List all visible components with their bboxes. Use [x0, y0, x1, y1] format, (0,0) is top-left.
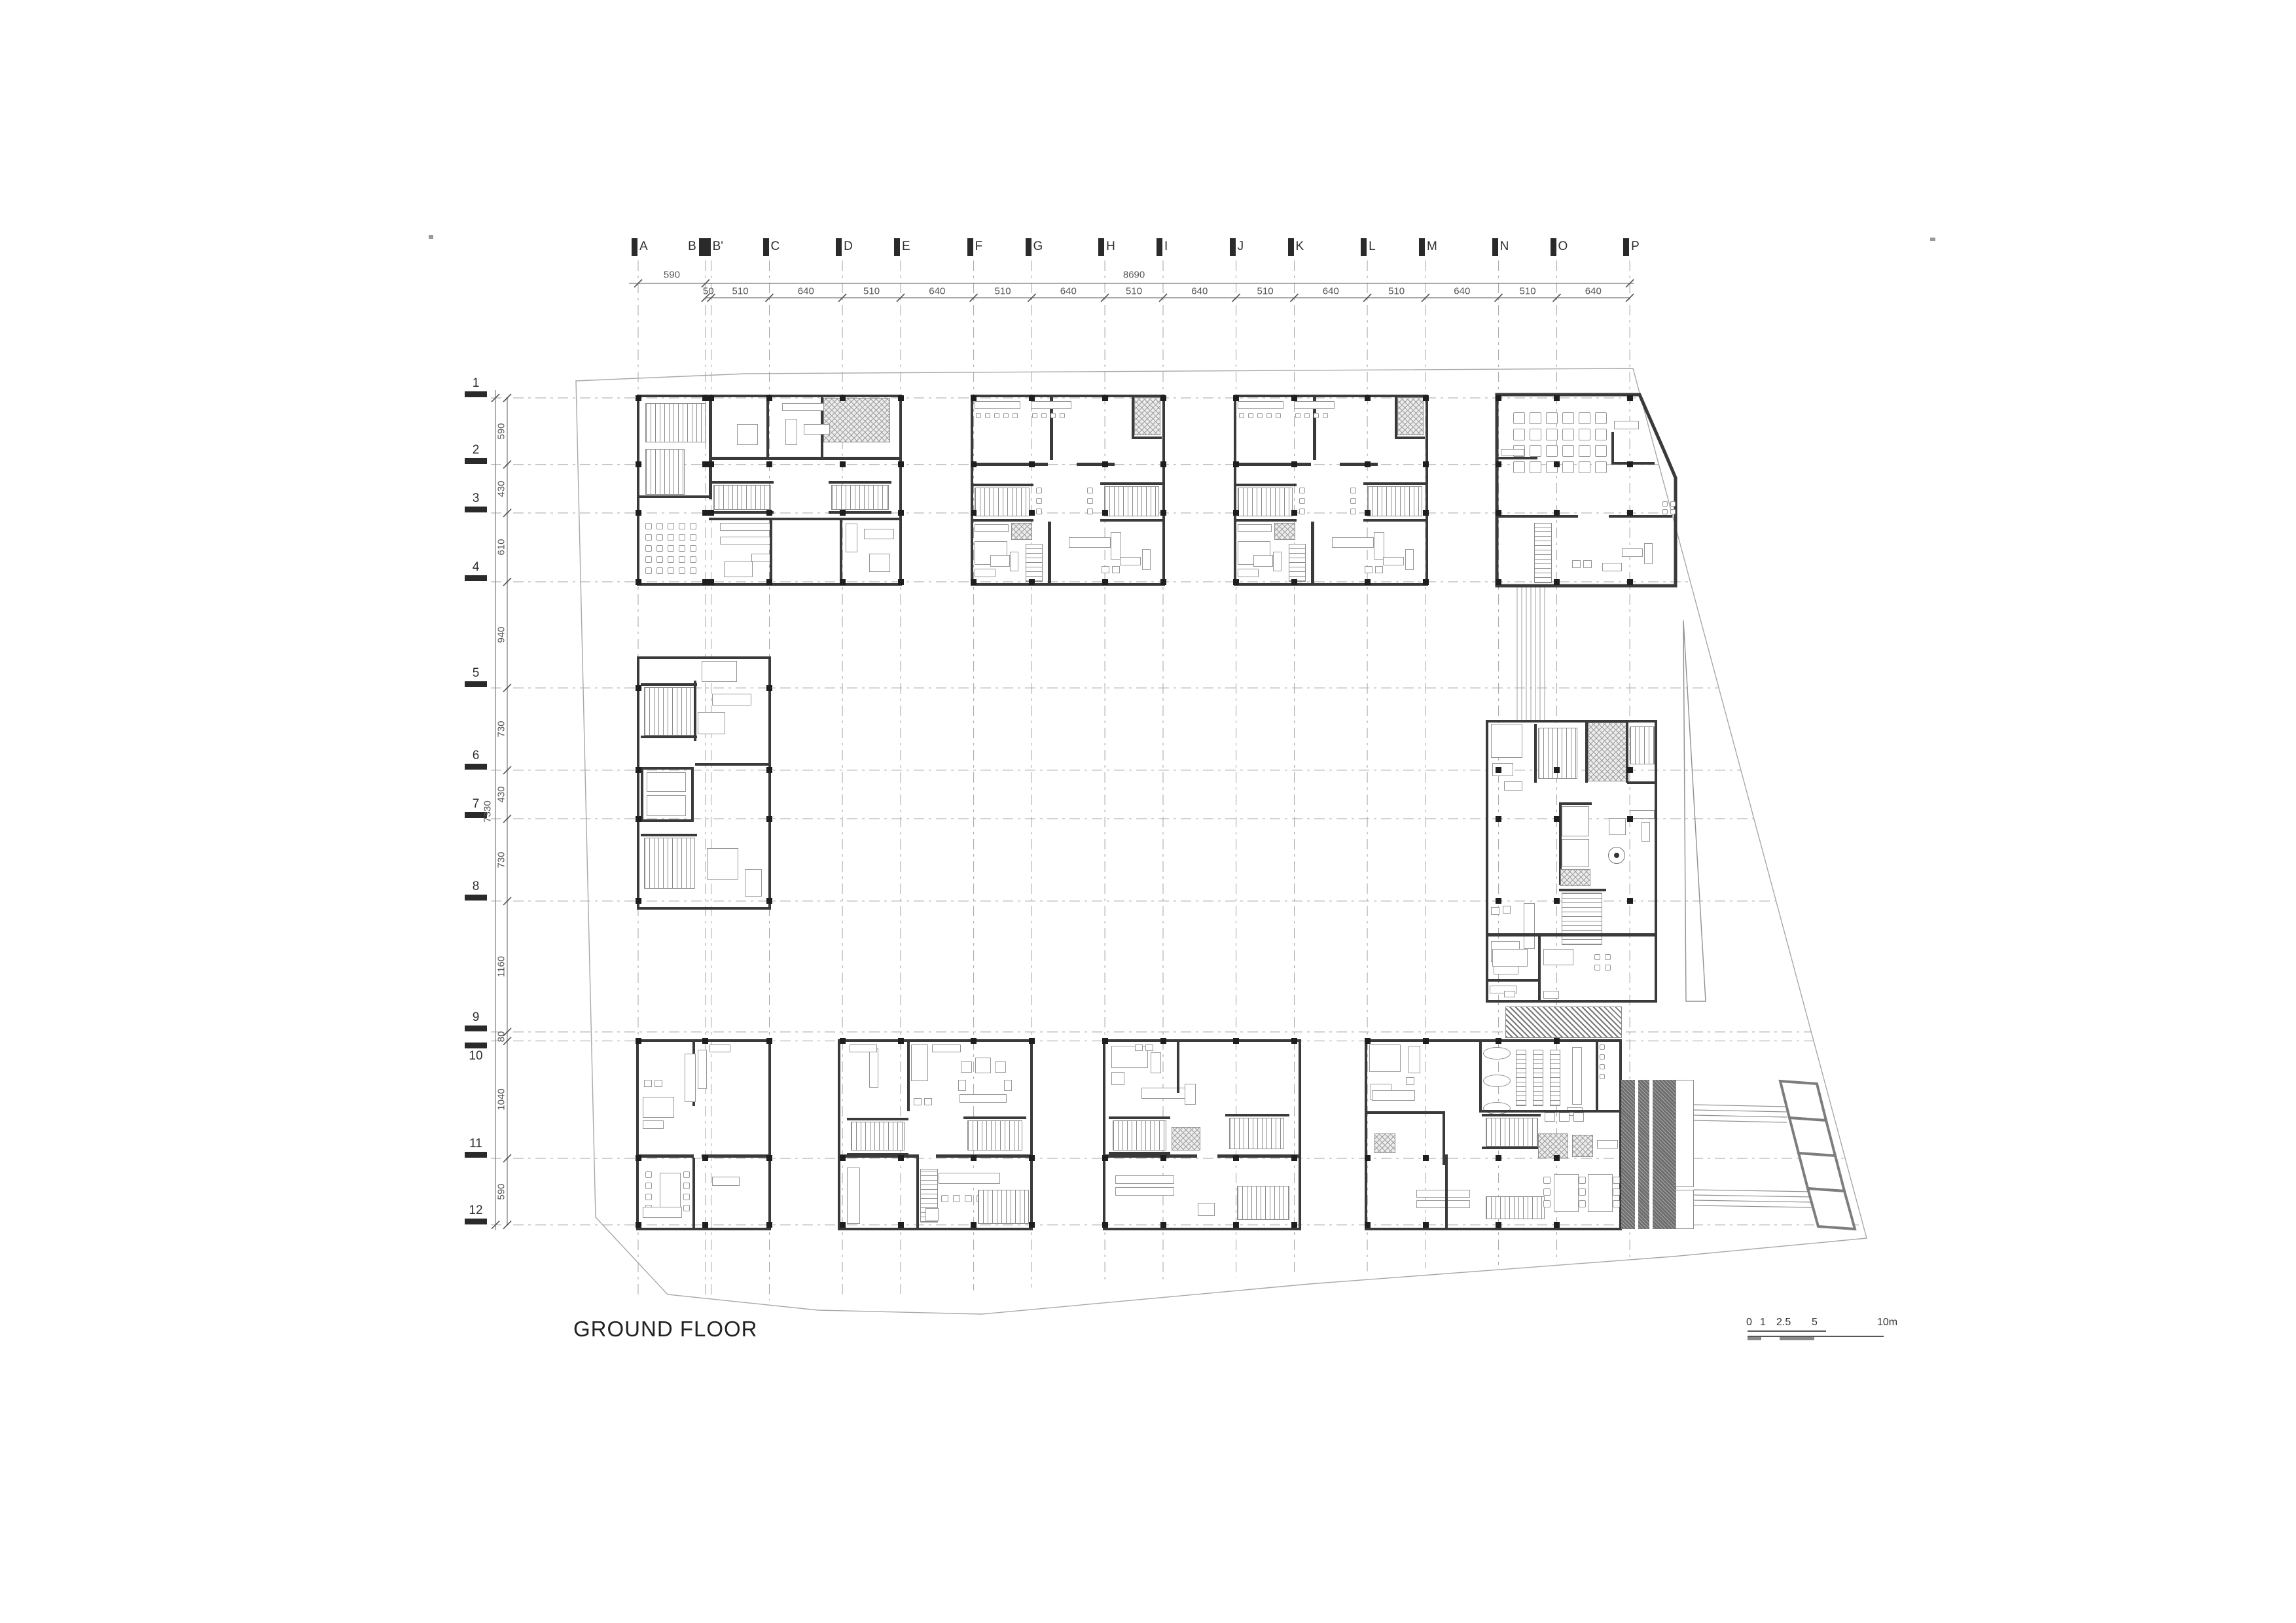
- wall: [838, 1154, 919, 1158]
- scale-bar-baseline: [1748, 1336, 1884, 1337]
- structural-column: [702, 395, 708, 401]
- dim-label-top-segment: 640: [1323, 286, 1339, 297]
- wall: [1559, 802, 1592, 805]
- scale-bar-underline: [1748, 1330, 1826, 1332]
- wall: [971, 484, 1033, 486]
- structural-column: [1496, 1038, 1501, 1044]
- grid-row-label-10: 10: [465, 1049, 487, 1063]
- structural-column: [840, 1222, 846, 1228]
- floor-plan-canvas: ABB'CDEFGHIJKLMNOP1234567891011125051064…: [0, 0, 2296, 1623]
- grid-column-label-M: M: [1427, 240, 1437, 254]
- room-outline: [1562, 806, 1589, 836]
- stair: [1367, 486, 1422, 516]
- wall: [702, 1154, 771, 1158]
- wall: [694, 681, 696, 741]
- furniture: [1365, 566, 1372, 573]
- wc-zone: [1572, 1135, 1593, 1157]
- grid-column-label-O: O: [1558, 240, 1568, 254]
- grid-row-marker-5: [465, 681, 487, 687]
- dim-label-left-segment: 80: [496, 1031, 507, 1042]
- stair: [1550, 1050, 1560, 1106]
- strip-gap: [1649, 1080, 1653, 1229]
- structural-column: [1160, 395, 1166, 401]
- structural-column: [1423, 1222, 1429, 1228]
- dim-label-top-segment: 510: [1257, 286, 1274, 297]
- furniture: [1504, 781, 1522, 791]
- grid-row-label-3: 3: [465, 491, 487, 506]
- chair: [1530, 461, 1541, 473]
- structural-column: [702, 510, 708, 516]
- grid-column-label-B: B: [688, 240, 696, 254]
- structural-column: [1496, 461, 1501, 467]
- chair: [1579, 1177, 1586, 1184]
- grid-column-label-L: L: [1369, 240, 1376, 254]
- furniture: [990, 555, 1010, 567]
- furniture: [1630, 810, 1655, 819]
- structural-column: [1291, 1222, 1297, 1228]
- wall: [692, 1158, 695, 1230]
- chair: [1546, 429, 1558, 440]
- grid-column-marker-B': [705, 238, 711, 256]
- chair: [1562, 461, 1574, 473]
- furniture: [643, 1097, 674, 1118]
- structural-column: [1102, 579, 1108, 585]
- furniture: [1151, 1052, 1161, 1073]
- chair: [1003, 413, 1009, 418]
- chair: [1350, 508, 1356, 514]
- laundry-machine: [1483, 1047, 1511, 1060]
- structural-column: [1233, 395, 1239, 401]
- furniture: [1369, 1044, 1401, 1072]
- grid-column-marker-J: [1230, 238, 1236, 256]
- grid-row-label-4: 4: [465, 560, 487, 575]
- furniture: [850, 1044, 877, 1052]
- grid-column-marker-L: [1361, 238, 1367, 256]
- structural-column: [1365, 395, 1371, 401]
- structural-column: [898, 461, 904, 467]
- chair: [1562, 429, 1574, 440]
- grid-column-marker-D: [836, 238, 842, 256]
- furniture: [1405, 549, 1414, 570]
- furniture: [1491, 724, 1522, 758]
- furniture: [1492, 949, 1528, 967]
- wall: [641, 736, 697, 738]
- structural-column: [1029, 461, 1035, 467]
- grid-column-marker-B: [699, 238, 705, 256]
- chair: [1579, 429, 1590, 440]
- chair: [656, 523, 663, 529]
- chair: [1594, 965, 1600, 971]
- chair: [1579, 1188, 1586, 1196]
- furniture: [1332, 537, 1374, 548]
- stair: [644, 687, 695, 736]
- chair: [690, 545, 696, 552]
- structural-column: [840, 395, 846, 401]
- furniture: [1145, 1044, 1153, 1051]
- dim-label-top-segment: 640: [929, 286, 945, 297]
- wall: [636, 1154, 694, 1158]
- chair: [1613, 1188, 1620, 1196]
- furniture: [975, 401, 1020, 409]
- chair: [1579, 1200, 1586, 1207]
- wall: [766, 395, 769, 458]
- chair: [976, 413, 981, 418]
- wall: [1559, 889, 1606, 891]
- stair: [851, 1122, 905, 1150]
- structural-column: [1102, 1038, 1108, 1044]
- structural-column: [766, 898, 772, 904]
- furniture: [1111, 532, 1121, 560]
- structural-column: [1233, 1038, 1239, 1044]
- structural-column: [1496, 1155, 1501, 1161]
- wall: [641, 819, 693, 822]
- furniture: [1238, 524, 1272, 532]
- structural-column: [1554, 510, 1560, 516]
- furniture: [1069, 537, 1111, 548]
- stair: [1113, 1120, 1166, 1150]
- furniture: [1543, 949, 1573, 965]
- chair: [953, 1195, 960, 1202]
- structural-column: [636, 1155, 641, 1161]
- structural-column: [1291, 579, 1297, 585]
- furniture: [698, 1050, 707, 1089]
- chair: [679, 545, 685, 552]
- wall: [709, 518, 902, 520]
- chair: [1579, 412, 1590, 424]
- stair: [1289, 544, 1306, 582]
- grid-row-label-5: 5: [465, 666, 487, 681]
- wall: [1486, 933, 1657, 936]
- furniture: [925, 1208, 939, 1221]
- grid-row-marker-2: [465, 458, 487, 464]
- chair: [683, 1205, 690, 1211]
- structural-column: [766, 395, 772, 401]
- furniture: [911, 1044, 928, 1081]
- wall: [1363, 482, 1426, 485]
- structural-column: [898, 579, 904, 585]
- structural-column: [1365, 579, 1371, 585]
- wall: [770, 518, 772, 586]
- grid-column-label-N: N: [1500, 240, 1509, 254]
- grid-row-marker-11: [465, 1152, 487, 1158]
- wall: [1311, 522, 1314, 586]
- furniture: [847, 1168, 860, 1224]
- chair: [656, 545, 663, 552]
- furniture: [1198, 1203, 1215, 1216]
- furniture: [1185, 1084, 1196, 1105]
- furniture: [995, 1061, 1006, 1073]
- structural-column: [1233, 510, 1239, 516]
- bridge-connector-line: [1694, 1115, 1787, 1117]
- wall: [641, 767, 693, 770]
- dim-label-left-segment: 610: [496, 539, 507, 556]
- furniture: [1273, 552, 1282, 571]
- furniture: [702, 661, 737, 682]
- structural-column: [766, 1222, 772, 1228]
- structural-column: [1496, 1222, 1501, 1228]
- wall: [1609, 515, 1672, 518]
- wall: [971, 519, 1033, 522]
- furniture: [647, 772, 686, 792]
- structural-column: [971, 1222, 977, 1228]
- furniture: [647, 795, 686, 816]
- furniture: [932, 1044, 961, 1052]
- structural-column: [766, 1038, 772, 1044]
- grid-row-label-12: 12: [465, 1204, 487, 1218]
- stair: [1562, 893, 1602, 945]
- chair: [1087, 498, 1093, 504]
- structural-column: [1627, 816, 1633, 822]
- dim-label-left-segment: 430: [496, 480, 507, 497]
- chair: [1036, 498, 1042, 504]
- grid-row-marker-12: [465, 1219, 487, 1224]
- chair: [679, 523, 685, 529]
- grid-column-marker-I: [1157, 238, 1162, 256]
- structural-column: [636, 579, 641, 585]
- stair: [1533, 1050, 1543, 1106]
- structural-column: [1102, 1222, 1108, 1228]
- wall: [1363, 519, 1426, 522]
- wall: [1479, 1039, 1482, 1113]
- service-strip: [1621, 1080, 1676, 1229]
- chair: [1299, 488, 1305, 493]
- chair: [645, 545, 652, 552]
- scale-bar: 0 1 2.5 5 10m: [1742, 1314, 1899, 1343]
- grid-column-marker-K: [1288, 238, 1294, 256]
- chair: [690, 567, 696, 574]
- furniture: [1238, 569, 1259, 577]
- furniture: [961, 1061, 972, 1073]
- chair: [679, 567, 685, 574]
- furniture: [1294, 401, 1335, 409]
- furniture: [1622, 548, 1643, 557]
- structural-column: [1029, 395, 1035, 401]
- chair: [683, 1171, 690, 1178]
- wall: [711, 511, 774, 514]
- scale-bar-segment: [1780, 1337, 1814, 1340]
- wc-zone: [1397, 397, 1424, 435]
- dim-label-overall-height: 7330: [482, 800, 493, 822]
- structural-column: [636, 767, 641, 773]
- furniture: [1408, 1046, 1420, 1073]
- structural-column: [766, 461, 772, 467]
- wall: [1445, 1154, 1448, 1230]
- external-stair-panel: [1780, 1081, 1826, 1120]
- furniture: [1416, 1190, 1470, 1198]
- structural-column: [1627, 395, 1633, 401]
- structural-column: [702, 1222, 708, 1228]
- chair: [1605, 965, 1611, 971]
- dim-label-top-segment: 510: [995, 286, 1011, 297]
- furniture: [724, 562, 753, 577]
- bridge-connector-line: [1694, 1190, 1814, 1192]
- wall: [847, 1118, 908, 1120]
- structural-column: [702, 1155, 708, 1161]
- structural-column: [1291, 395, 1297, 401]
- structural-column: [1160, 510, 1166, 516]
- structural-column: [1102, 395, 1108, 401]
- structural-column: [1423, 461, 1429, 467]
- chair: [645, 534, 652, 541]
- furniture: [958, 1080, 966, 1091]
- scale-label-10m: 10m: [1877, 1317, 1897, 1329]
- furniture: [1115, 1187, 1174, 1196]
- chair: [1662, 501, 1668, 507]
- chair: [1543, 1177, 1551, 1184]
- furniture: [975, 524, 1009, 532]
- laundry-machine: [1483, 1102, 1511, 1115]
- structural-column: [971, 579, 977, 585]
- wc-zone: [1134, 397, 1160, 435]
- furniture: [707, 848, 738, 880]
- wc-zone: [1588, 722, 1627, 781]
- bridge-connector-line: [1694, 1205, 1814, 1207]
- wall: [1100, 519, 1163, 522]
- structural-column: [636, 510, 641, 516]
- wall: [829, 511, 891, 514]
- chair: [679, 534, 685, 541]
- structural-column: [1554, 579, 1560, 585]
- furniture: [1141, 1088, 1187, 1099]
- furniture: [1545, 1113, 1555, 1122]
- furniture: [655, 1080, 662, 1087]
- chair: [985, 413, 990, 418]
- grid-row-label-8: 8: [465, 880, 487, 894]
- structural-column: [1423, 395, 1429, 401]
- stair: [1630, 726, 1655, 764]
- stair: [645, 449, 685, 495]
- chair: [1050, 413, 1056, 418]
- chair: [1595, 412, 1607, 424]
- grid-column-label-J: J: [1238, 240, 1244, 254]
- stair: [1229, 1118, 1284, 1149]
- laundry-machine: [1483, 1075, 1511, 1087]
- furniture: [1573, 1113, 1584, 1122]
- dim-label-left-segment: 1040: [496, 1089, 507, 1111]
- chair: [1513, 412, 1525, 424]
- furniture: [1111, 1072, 1124, 1085]
- chair: [679, 556, 685, 563]
- stair: [967, 1120, 1022, 1150]
- chair: [645, 523, 652, 529]
- chair: [1530, 412, 1541, 424]
- grid-row-label-2: 2: [465, 443, 487, 457]
- chair: [1662, 509, 1668, 514]
- furniture: [1572, 1047, 1582, 1105]
- structural-column: [840, 1038, 846, 1044]
- wall: [1626, 722, 1628, 783]
- wall: [1225, 1114, 1289, 1116]
- structural-column: [1233, 461, 1239, 467]
- structural-column: [898, 1038, 904, 1044]
- structural-column: [1233, 1222, 1239, 1228]
- scale-label-2-5: 2.5: [1776, 1317, 1791, 1329]
- grid-column-label-C: C: [771, 240, 780, 254]
- structural-column: [1496, 579, 1501, 585]
- furniture: [745, 869, 762, 897]
- wall: [1497, 515, 1578, 518]
- grid-row-marker-10: [465, 1043, 487, 1048]
- structural-column: [636, 1222, 641, 1228]
- structural-column: [898, 395, 904, 401]
- structural-column: [840, 461, 846, 467]
- structural-column: [1291, 510, 1297, 516]
- structural-column: [766, 816, 772, 822]
- grid-column-label-K: K: [1296, 240, 1304, 254]
- furniture: [1112, 566, 1120, 573]
- structural-column: [1554, 461, 1560, 467]
- chair: [1041, 413, 1047, 418]
- wall: [1627, 781, 1657, 784]
- chair: [656, 567, 663, 574]
- stair: [713, 485, 771, 510]
- furniture: [1583, 560, 1592, 568]
- structural-column: [1554, 1038, 1560, 1044]
- structural-column: [636, 461, 641, 467]
- structural-column: [636, 898, 641, 904]
- wall: [829, 481, 891, 484]
- furniture: [864, 529, 894, 539]
- wall: [1109, 1116, 1170, 1119]
- wall: [907, 1039, 910, 1111]
- chair: [1350, 488, 1356, 493]
- dim-label-first-bay: 590: [664, 270, 680, 281]
- grid-column-marker-N: [1492, 238, 1498, 256]
- wall: [1538, 936, 1541, 1002]
- chair: [1087, 508, 1093, 514]
- chair: [668, 556, 674, 563]
- chair: [1543, 1200, 1551, 1207]
- chair: [683, 1194, 690, 1200]
- grid-column-label-F: F: [975, 240, 983, 254]
- dim-label-left-segment: 430: [496, 786, 507, 802]
- furniture: [1120, 557, 1141, 565]
- structural-column: [971, 461, 977, 467]
- structural-column: [1102, 461, 1108, 467]
- furniture: [975, 1058, 991, 1073]
- structural-column: [636, 816, 641, 822]
- furniture: [782, 403, 824, 411]
- furniture: [975, 569, 996, 577]
- chair: [1546, 412, 1558, 424]
- grid-column-marker-P: [1623, 238, 1629, 256]
- structural-column: [636, 1038, 641, 1044]
- structural-column: [1496, 816, 1501, 822]
- chair: [1530, 445, 1541, 457]
- structural-column: [766, 579, 772, 585]
- scale-bar-segment: [1748, 1337, 1761, 1340]
- furniture: [644, 1080, 652, 1087]
- structural-column: [1423, 510, 1429, 516]
- chair: [1239, 413, 1244, 418]
- grid-row-marker-4: [465, 575, 487, 581]
- furniture: [709, 1044, 730, 1052]
- grid-row-label-9: 9: [465, 1010, 487, 1025]
- external-stair-panel: [1808, 1188, 1855, 1229]
- grid-column-label-P: P: [1631, 240, 1640, 254]
- grid-row-label-6: 6: [465, 749, 487, 763]
- wall: [711, 481, 774, 484]
- chair: [994, 413, 999, 418]
- wall: [1395, 437, 1425, 439]
- column-dot: [1614, 853, 1619, 858]
- furniture: [712, 1177, 740, 1186]
- structural-column: [708, 579, 714, 585]
- stair: [1516, 1050, 1526, 1106]
- chair: [668, 523, 674, 529]
- grid-column-label-A: A: [639, 240, 648, 254]
- structural-column: [1365, 510, 1371, 516]
